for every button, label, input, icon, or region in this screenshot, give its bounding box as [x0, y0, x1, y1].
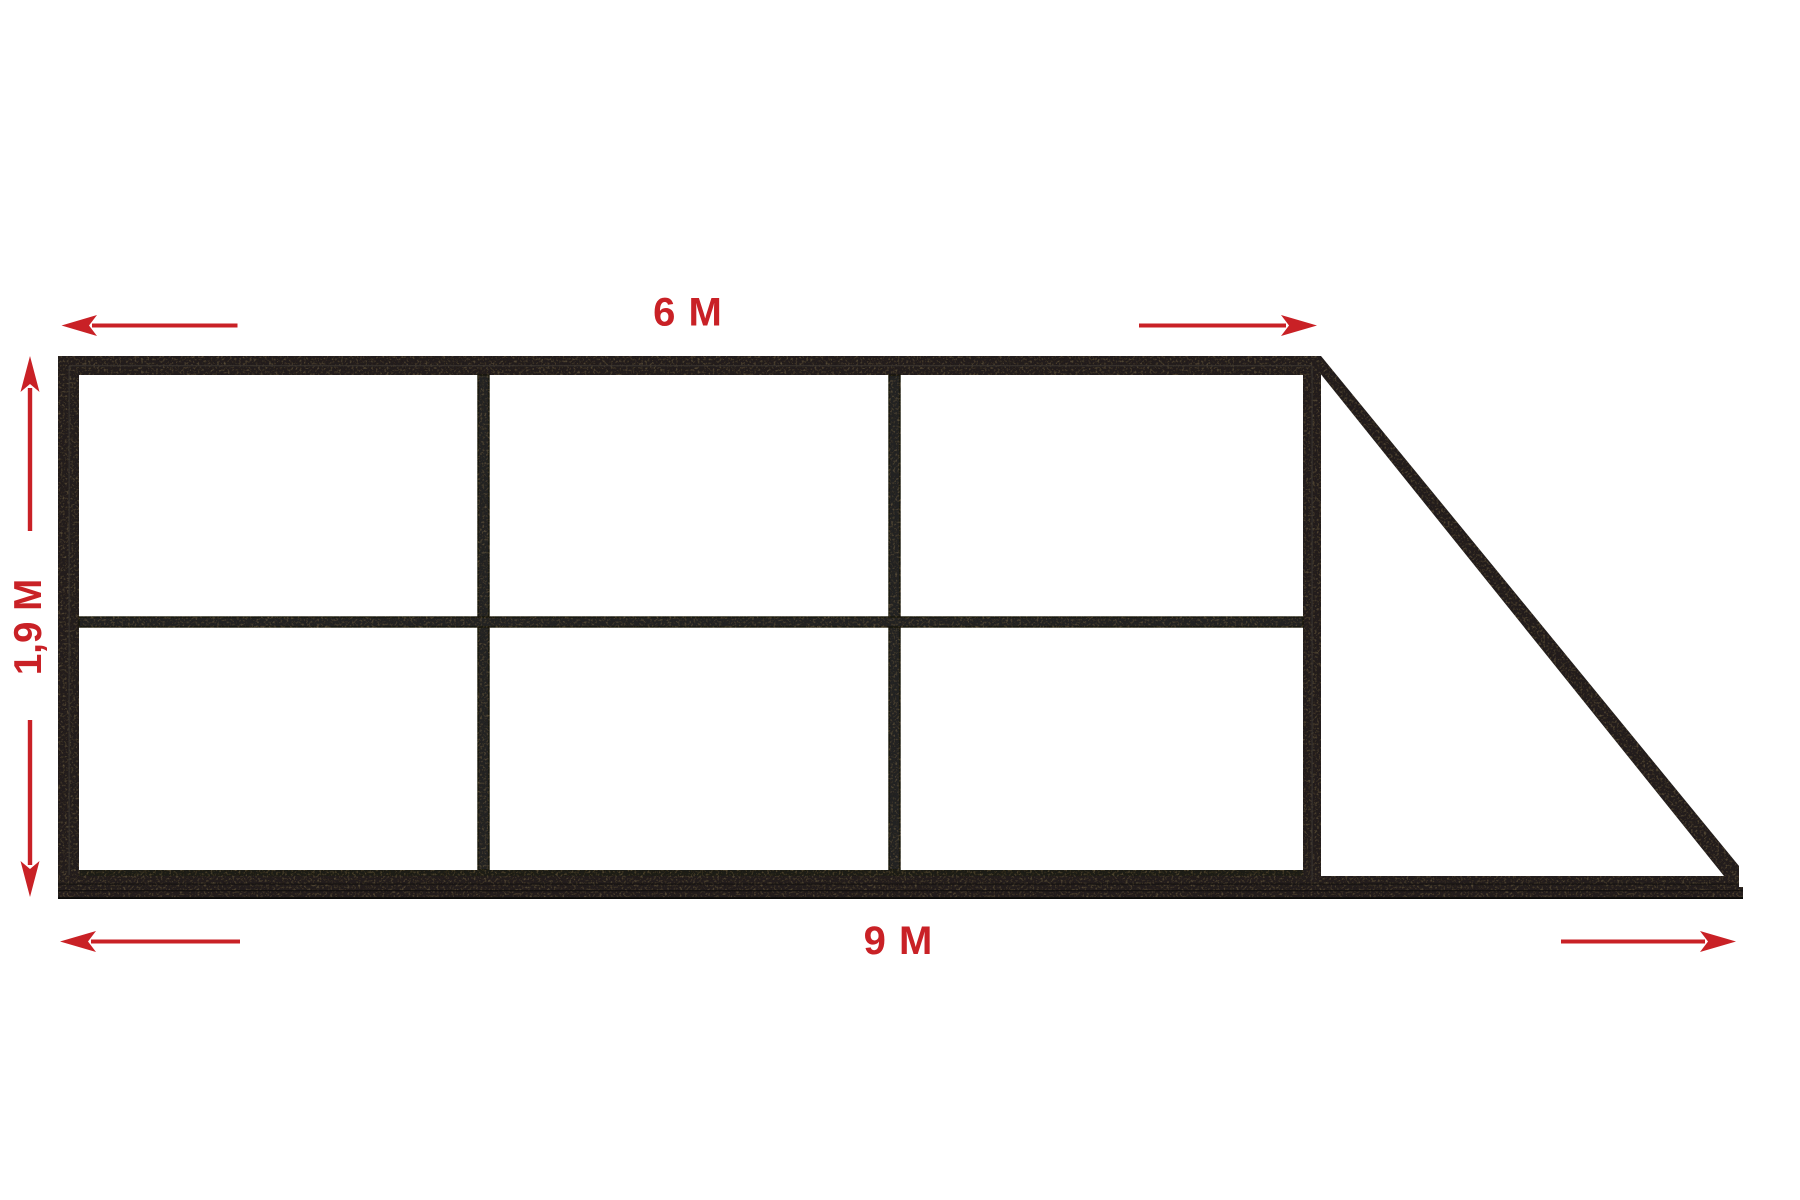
svg-text:9 М: 9 М [864, 919, 934, 963]
svg-text:1,9 М: 1,9 М [7, 579, 50, 675]
svg-text:6 М: 6 М [653, 291, 723, 335]
